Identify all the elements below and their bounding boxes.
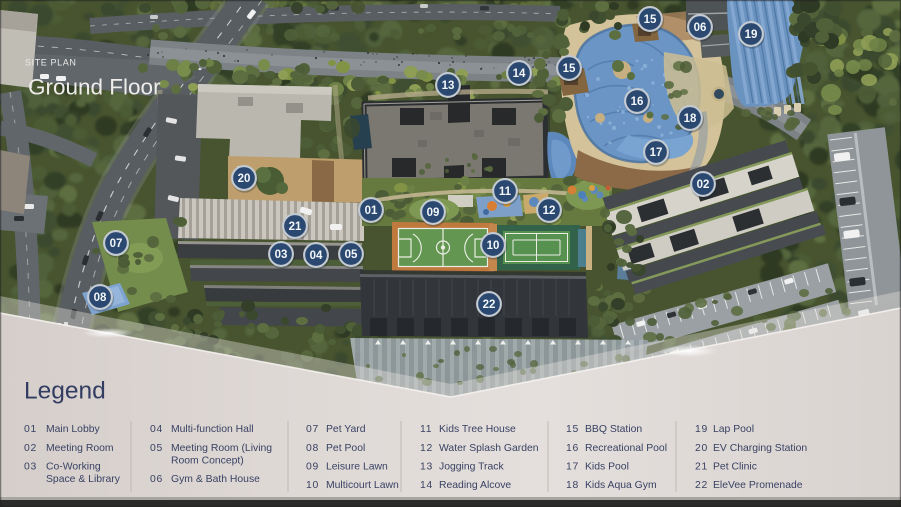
svg-text:22: 22 <box>483 299 496 311</box>
svg-text:19: 19 <box>695 424 708 435</box>
svg-text:10: 10 <box>487 240 500 252</box>
svg-text:Reading Alcove: Reading Alcove <box>439 480 511 491</box>
svg-text:08: 08 <box>306 443 319 454</box>
svg-text:Legend: Legend <box>24 378 106 405</box>
svg-text:01: 01 <box>365 205 378 217</box>
svg-text:16: 16 <box>631 96 644 108</box>
svg-text:01: 01 <box>24 424 37 435</box>
svg-text:12: 12 <box>543 205 556 217</box>
svg-text:14: 14 <box>420 480 433 491</box>
svg-text:22: 22 <box>695 480 708 491</box>
svg-text:10: 10 <box>306 480 319 491</box>
svg-text:Pet Pool: Pet Pool <box>326 443 365 454</box>
svg-text:Lap Pool: Lap Pool <box>713 424 754 435</box>
svg-text:Jogging Track: Jogging Track <box>439 462 504 473</box>
svg-text:05: 05 <box>345 249 358 261</box>
svg-text:20: 20 <box>695 443 708 454</box>
svg-text:Pet Clinic: Pet Clinic <box>713 462 757 473</box>
svg-text:Meeting Room: Meeting Room <box>46 443 114 454</box>
svg-text:SITE PLAN: SITE PLAN <box>25 58 76 68</box>
svg-text:04: 04 <box>310 250 323 262</box>
svg-text:09: 09 <box>306 462 319 473</box>
svg-text:15: 15 <box>644 14 657 26</box>
svg-text:Ground Floor: Ground Floor <box>28 75 161 100</box>
svg-text:Multicourt Lawn: Multicourt Lawn <box>326 480 399 491</box>
svg-text:06: 06 <box>150 474 163 485</box>
svg-text:20: 20 <box>238 173 251 185</box>
svg-text:Meeting Room (Living: Meeting Room (Living <box>171 443 272 454</box>
svg-text:EleVee Promenade: EleVee Promenade <box>713 480 803 491</box>
svg-text:Kids Aqua Gym: Kids Aqua Gym <box>585 480 657 491</box>
svg-text:Kids Pool: Kids Pool <box>585 462 629 473</box>
svg-text:03: 03 <box>275 249 288 261</box>
svg-text:07: 07 <box>110 238 123 250</box>
svg-text:02: 02 <box>24 443 37 454</box>
svg-text:Gym & Bath House: Gym & Bath House <box>171 474 260 485</box>
svg-text:Room Concept): Room Concept) <box>171 456 244 467</box>
svg-text:Leisure Lawn: Leisure Lawn <box>326 462 388 473</box>
svg-text:12: 12 <box>420 443 433 454</box>
svg-text:Water Splash Garden: Water Splash Garden <box>439 443 539 454</box>
svg-text:15: 15 <box>563 63 576 75</box>
svg-text:11: 11 <box>499 186 512 198</box>
svg-text:08: 08 <box>94 292 107 304</box>
svg-text:15: 15 <box>566 424 579 435</box>
svg-text:Co-Working: Co-Working <box>46 462 101 473</box>
svg-text:11: 11 <box>420 424 432 435</box>
svg-text:06: 06 <box>694 22 707 34</box>
svg-text:17: 17 <box>650 147 663 159</box>
svg-text:19: 19 <box>745 29 758 41</box>
svg-text:EV Charging Station: EV Charging Station <box>713 443 807 454</box>
svg-text:13: 13 <box>420 462 433 473</box>
svg-text:13: 13 <box>442 80 455 92</box>
svg-text:16: 16 <box>566 443 579 454</box>
svg-text:18: 18 <box>566 480 579 491</box>
svg-text:Space & Library: Space & Library <box>46 474 121 485</box>
svg-text:05: 05 <box>150 443 163 454</box>
svg-text:03: 03 <box>24 462 37 473</box>
svg-text:14: 14 <box>513 68 526 80</box>
svg-text:21: 21 <box>695 462 708 473</box>
svg-text:Main Lobby: Main Lobby <box>46 424 101 435</box>
svg-text:17: 17 <box>566 462 579 473</box>
svg-text:21: 21 <box>289 221 302 233</box>
svg-text:02: 02 <box>697 179 710 191</box>
svg-text:04: 04 <box>150 424 163 435</box>
svg-text:18: 18 <box>684 113 697 125</box>
svg-text:BBQ Station: BBQ Station <box>585 424 642 435</box>
svg-text:09: 09 <box>427 207 440 219</box>
svg-text:Pet Yard: Pet Yard <box>326 424 366 435</box>
svg-text:Recreational Pool: Recreational Pool <box>585 443 667 454</box>
svg-text:07: 07 <box>306 424 319 435</box>
svg-text:Kids Tree House: Kids Tree House <box>439 424 516 435</box>
svg-text:Multi-function Hall: Multi-function Hall <box>171 424 254 435</box>
